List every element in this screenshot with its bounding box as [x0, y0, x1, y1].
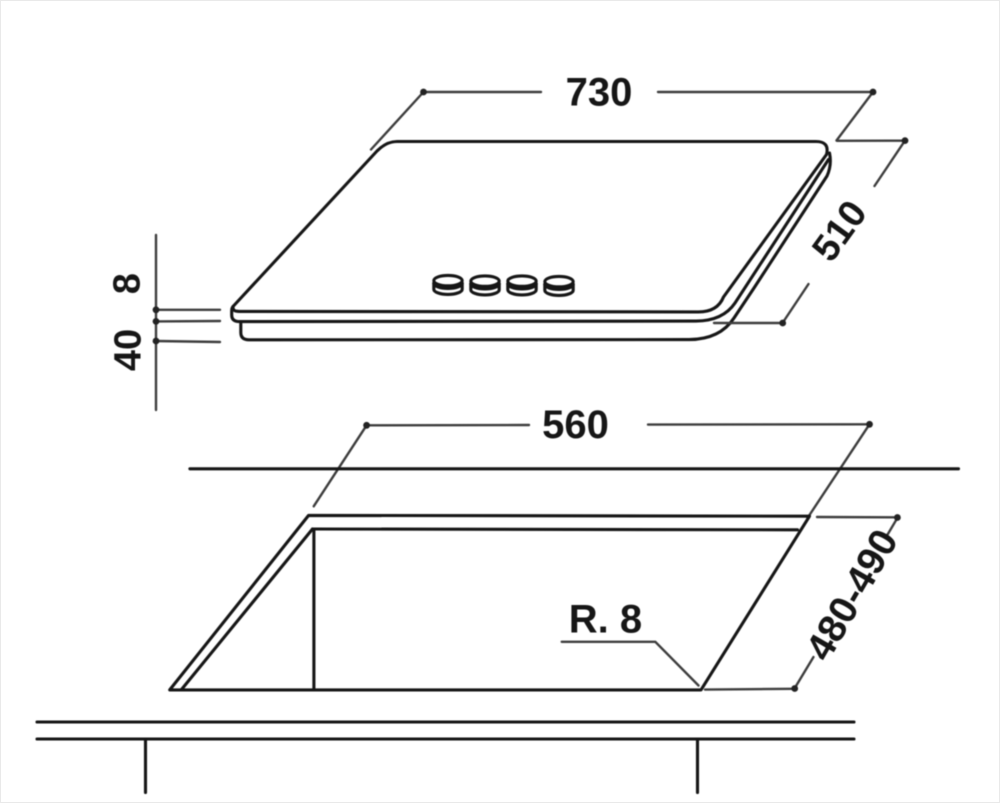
svg-text:510: 510	[804, 193, 875, 269]
svg-text:730: 730	[566, 70, 633, 114]
svg-text:8: 8	[107, 273, 149, 294]
svg-text:R. 8: R. 8	[569, 597, 642, 641]
svg-text:560: 560	[542, 403, 609, 447]
svg-text:40: 40	[107, 329, 149, 371]
svg-text:480-490: 480-490	[798, 522, 907, 667]
